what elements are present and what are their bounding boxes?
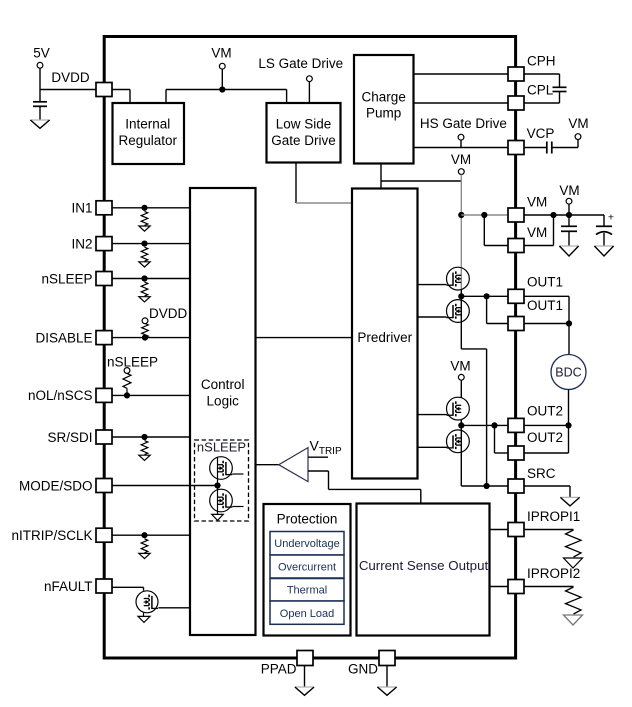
svg-text:nSLEEP: nSLEEP bbox=[197, 440, 246, 455]
svg-text:Predriver: Predriver bbox=[357, 330, 412, 345]
svg-text:IN1: IN1 bbox=[71, 201, 92, 216]
svg-text:OUT2: OUT2 bbox=[527, 404, 563, 419]
svg-text:LS Gate Drive: LS Gate Drive bbox=[258, 56, 343, 71]
svg-text:Low Side: Low Side bbox=[276, 117, 332, 132]
svg-text:Protection: Protection bbox=[277, 511, 338, 526]
svg-text:SR/SDI: SR/SDI bbox=[47, 430, 92, 445]
svg-text:Charge: Charge bbox=[362, 89, 406, 104]
svg-text:IN2: IN2 bbox=[71, 236, 92, 251]
svg-text:Logic: Logic bbox=[207, 394, 240, 409]
svg-text:nFAULT: nFAULT bbox=[44, 579, 93, 594]
svg-text:IPROPI1: IPROPI1 bbox=[527, 509, 580, 524]
svg-text:VM: VM bbox=[568, 116, 588, 131]
svg-text:Open Load: Open Load bbox=[280, 608, 334, 620]
svg-text:Thermal: Thermal bbox=[287, 585, 327, 597]
svg-text:HS Gate Drive: HS Gate Drive bbox=[420, 116, 507, 131]
svg-text:5V: 5V bbox=[33, 46, 50, 61]
svg-text:nSLEEP: nSLEEP bbox=[107, 354, 158, 369]
svg-text:VM: VM bbox=[559, 183, 579, 198]
svg-text:VM: VM bbox=[527, 225, 547, 240]
svg-text:Overcurrent: Overcurrent bbox=[278, 561, 336, 573]
svg-text:VM: VM bbox=[211, 46, 231, 61]
svg-text:OUT1: OUT1 bbox=[527, 275, 563, 290]
svg-text:OUT1: OUT1 bbox=[527, 298, 563, 313]
svg-text:IPROPI2: IPROPI2 bbox=[527, 566, 580, 581]
svg-text:VM: VM bbox=[527, 195, 547, 210]
svg-text:GND: GND bbox=[348, 661, 378, 676]
svg-text:nITRIP/SCLK: nITRIP/SCLK bbox=[11, 528, 92, 543]
svg-text:VCP: VCP bbox=[527, 126, 555, 141]
svg-text:Regulator: Regulator bbox=[119, 133, 178, 148]
svg-text:Pump: Pump bbox=[366, 106, 401, 121]
svg-text:Control: Control bbox=[201, 377, 245, 392]
svg-text:Internal: Internal bbox=[125, 117, 170, 132]
svg-text:DVDD: DVDD bbox=[149, 306, 188, 321]
svg-text:nOL/nSCS: nOL/nSCS bbox=[28, 388, 93, 403]
svg-text:VM: VM bbox=[450, 359, 470, 374]
svg-text:Gate Drive: Gate Drive bbox=[271, 133, 336, 148]
svg-text:Current Sense Output: Current Sense Output bbox=[359, 558, 489, 573]
svg-text:Undervoltage: Undervoltage bbox=[274, 538, 339, 550]
svg-text:VM: VM bbox=[451, 152, 471, 167]
svg-text:CPH: CPH bbox=[527, 54, 556, 69]
svg-text:CPL: CPL bbox=[527, 83, 554, 98]
svg-text:MODE/SDO: MODE/SDO bbox=[19, 478, 93, 493]
svg-text:BDC: BDC bbox=[555, 366, 581, 380]
svg-text:+: + bbox=[608, 212, 614, 224]
svg-text:PPAD: PPAD bbox=[261, 661, 297, 676]
svg-text:nSLEEP: nSLEEP bbox=[41, 271, 92, 286]
svg-text:OUT2: OUT2 bbox=[527, 430, 563, 445]
svg-text:DISABLE: DISABLE bbox=[35, 330, 92, 345]
svg-text:DVDD: DVDD bbox=[51, 70, 90, 85]
svg-text:SRC: SRC bbox=[527, 466, 556, 481]
